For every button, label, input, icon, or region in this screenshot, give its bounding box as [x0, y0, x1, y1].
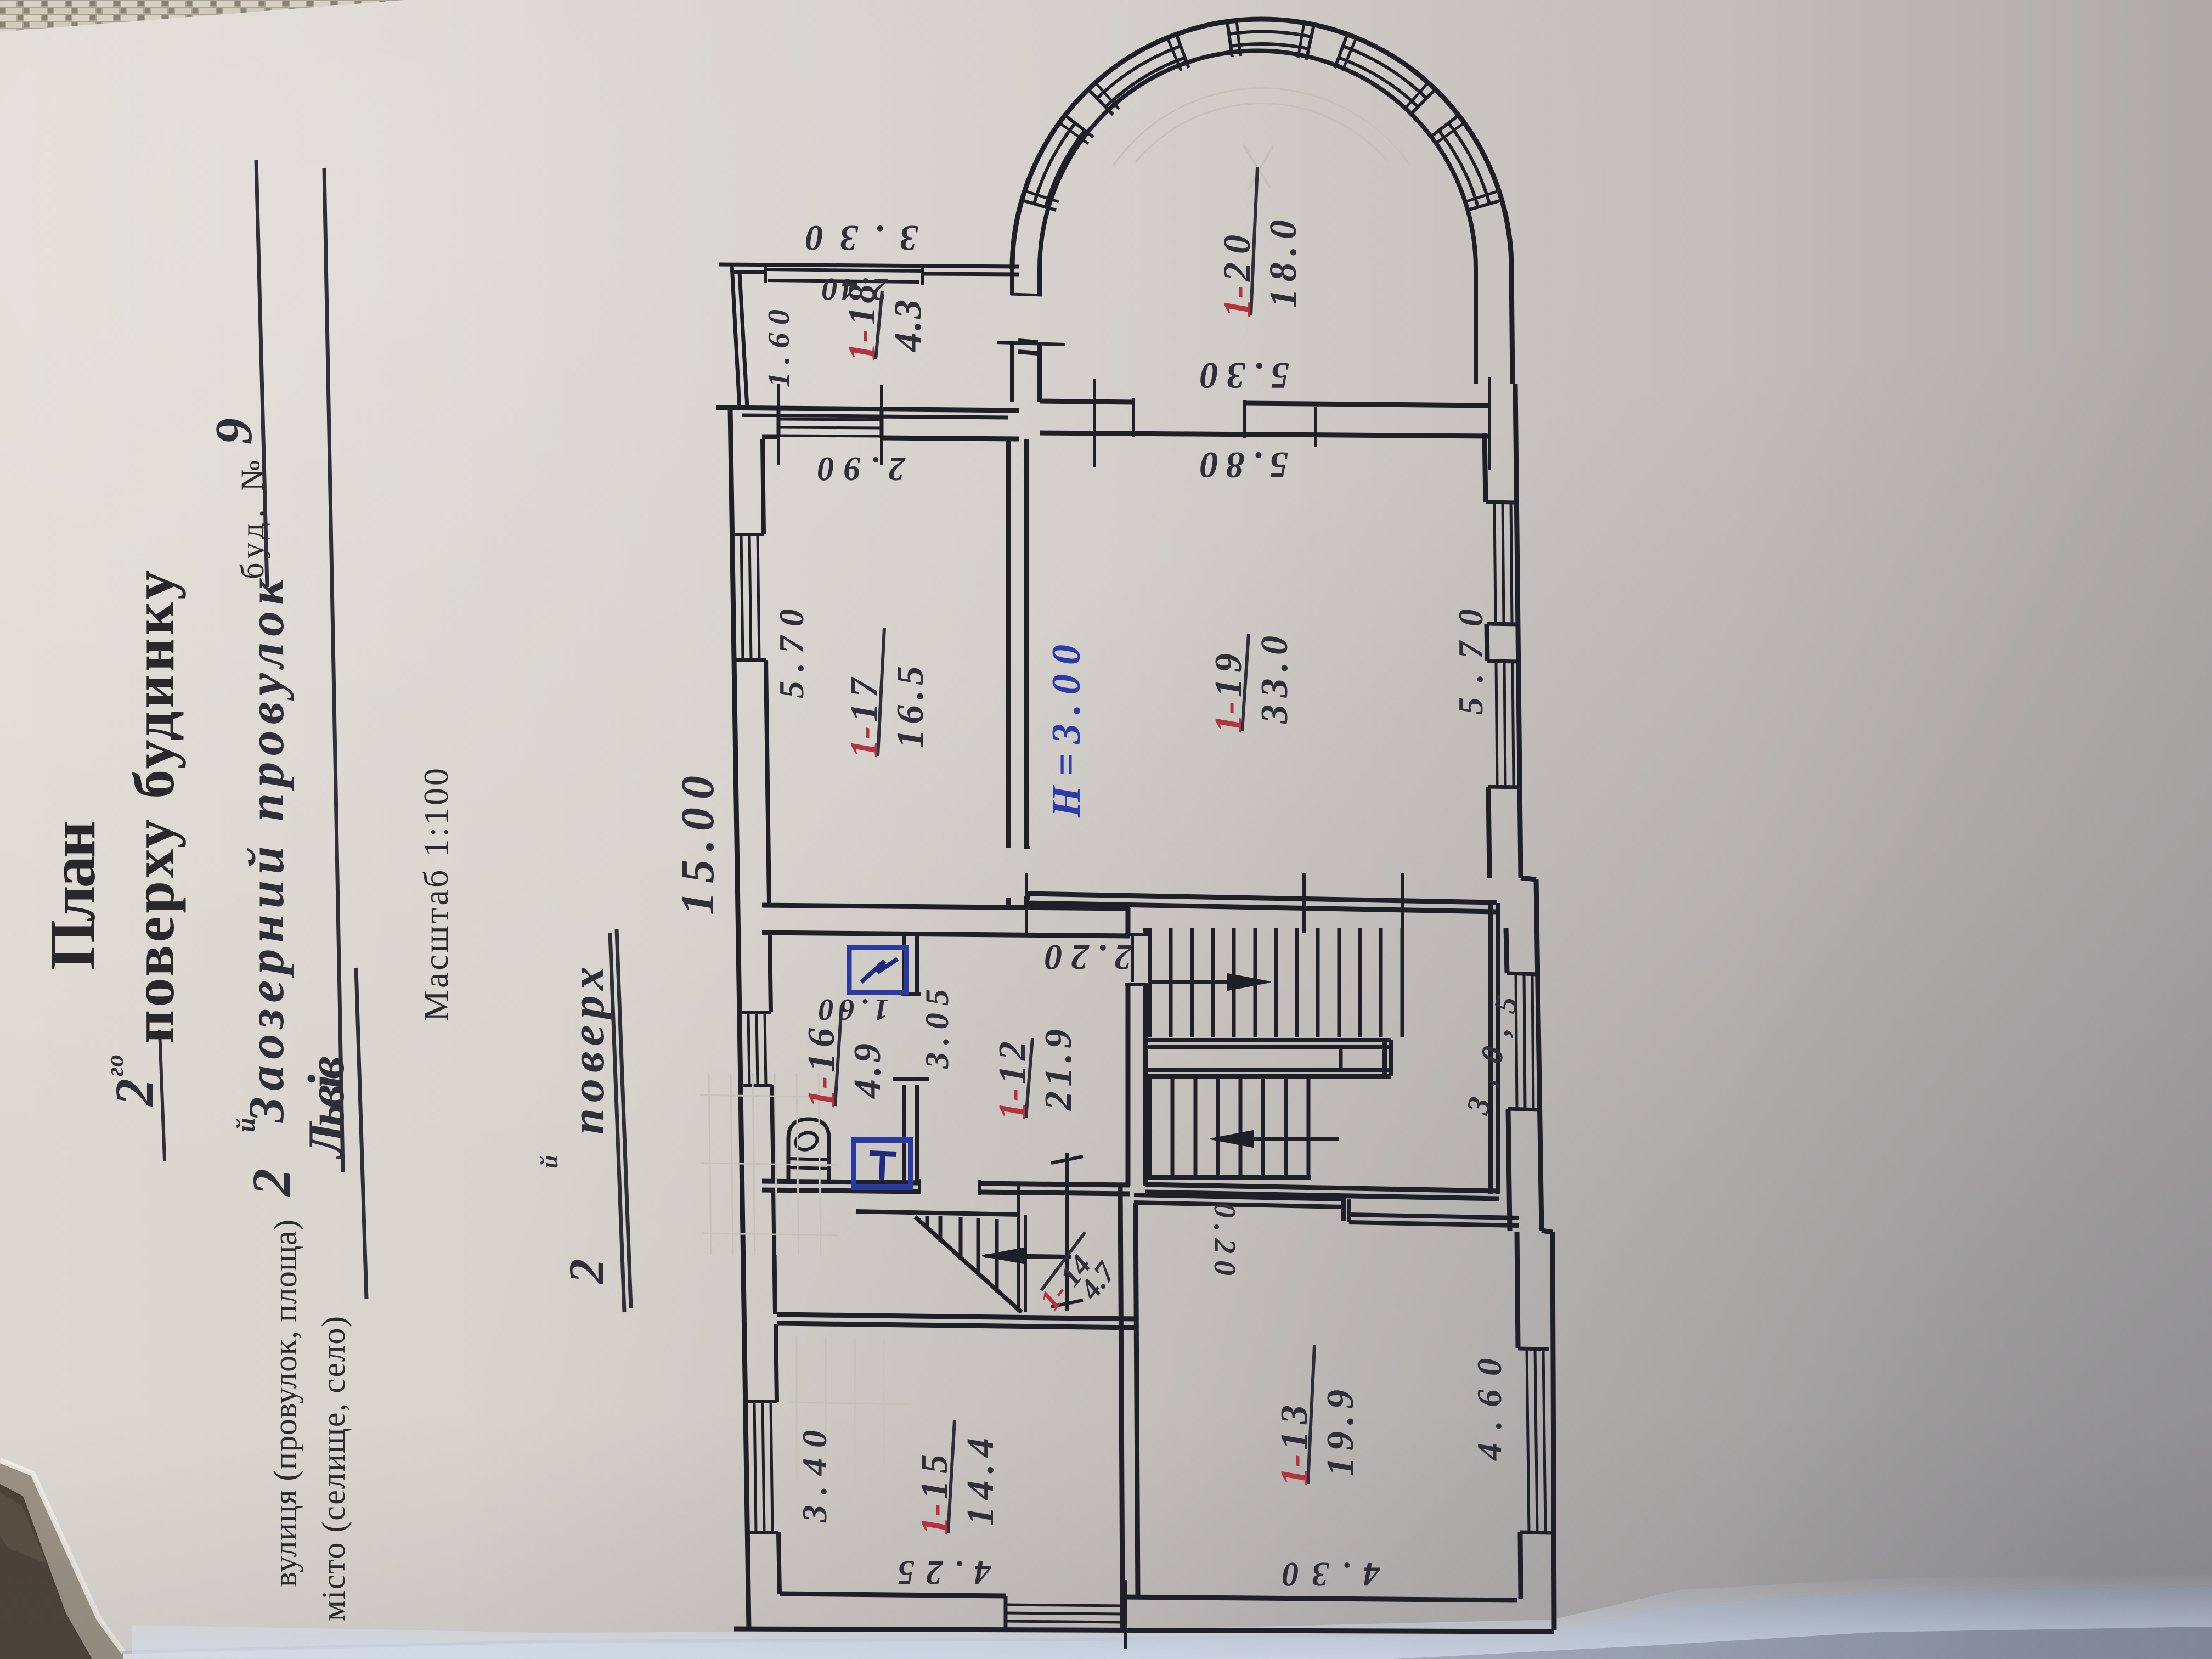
svg-text:19.9: 19.9	[1319, 1390, 1362, 1476]
svg-text:1-: 1-	[1273, 1454, 1316, 1486]
svg-text:План: План	[37, 821, 109, 970]
svg-text:1-: 1-	[800, 1076, 843, 1108]
svg-text:5.70: 5.70	[772, 609, 811, 698]
svg-text:5.80: 5.80	[1200, 444, 1288, 486]
svg-text:2: 2	[104, 1079, 165, 1107]
svg-text:2: 2	[241, 1169, 302, 1197]
svg-text:й: й	[536, 1155, 563, 1169]
svg-text:го: го	[100, 1054, 128, 1076]
svg-text:15.00: 15.00	[671, 776, 724, 915]
svg-text:1.60: 1.60	[762, 309, 796, 387]
svg-text:1-: 1-	[843, 726, 885, 758]
svg-text:9: 9	[204, 418, 263, 444]
svg-text:1-: 1-	[1216, 286, 1259, 318]
svg-text:Львів: Львів	[298, 1056, 355, 1160]
svg-text:1-: 1-	[841, 330, 883, 362]
svg-text:місто (селище, село): місто (селище, село)	[315, 1316, 352, 1621]
svg-text:16.5: 16.5	[889, 666, 932, 748]
svg-text:14.4: 14.4	[960, 1438, 1002, 1526]
svg-text:вулиця (провулок, площа): вулиця (провулок, площа)	[267, 1220, 303, 1587]
svg-text:33.0: 33.0	[1254, 636, 1296, 724]
svg-text:1-: 1-	[913, 1504, 956, 1536]
svg-text:4.9: 4.9	[847, 1043, 889, 1099]
svg-text:0.20: 0.20	[1207, 1203, 1242, 1276]
svg-text:1-: 1-	[1207, 702, 1250, 733]
svg-text:4.3: 4.3	[887, 300, 929, 353]
svg-text:21.9: 21.9	[1037, 1029, 1080, 1111]
svg-text:2.40: 2.40	[822, 272, 888, 307]
svg-text:поверху будинку: поверху будинку	[122, 571, 186, 1043]
svg-text:Заозерний провулок: Заозерний провулок	[238, 578, 294, 1123]
svg-text:2: 2	[558, 1259, 614, 1285]
svg-text:1.60: 1.60	[819, 992, 889, 1026]
svg-text:3.05: 3.05	[919, 989, 955, 1069]
svg-text:18.0: 18.0	[1262, 220, 1305, 308]
svg-text:1-: 1-	[991, 1088, 1034, 1120]
svg-text:2.20: 2.20	[1045, 937, 1133, 977]
svg-text:5.30: 5.30	[1200, 355, 1289, 397]
